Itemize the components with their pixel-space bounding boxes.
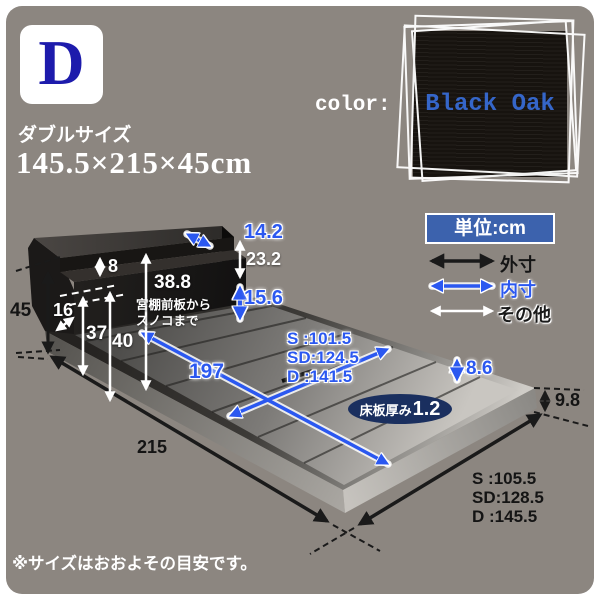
dim-rail-inner-height: 8.6	[466, 358, 492, 380]
dim-height-37: 37	[86, 323, 107, 345]
disclaimer-notes: ※サイズはおおよその目安です。 ※曲線部や若干の個体差などにより、 表記と多少の…	[12, 509, 373, 594]
legend-outer-label: 外寸	[500, 251, 536, 277]
outer-width-block: S :105.5 SD:128.5 D :145.5	[472, 469, 544, 526]
color-label: color:	[315, 94, 391, 117]
product-spec-card: D ダブルサイズ 145.5×215×45cm color: Black Oak…	[6, 6, 594, 594]
dim-headboard-front-upper: 23.2	[246, 249, 281, 270]
dim-inner-width-s: S :101.5	[287, 329, 359, 348]
color-name: Black Oak	[425, 91, 555, 118]
dim-total-height: 45	[10, 300, 31, 322]
dim-frame-height: 9.8	[555, 390, 580, 411]
unit-badge: 単位:cm	[425, 213, 555, 244]
dim-outer-width-sd: SD:128.5	[472, 488, 544, 507]
size-letter-badge: D	[20, 25, 103, 104]
size-letter: D	[20, 25, 103, 101]
note-line-1: ※サイズはおおよその目安です。	[12, 553, 373, 575]
size-dimensions: 145.5×215×45cm	[16, 145, 252, 181]
legend-inner-label: 内寸	[500, 276, 536, 302]
dim-headboard-lip: 8	[108, 256, 118, 277]
dim-outer-width-d: D :145.5	[472, 507, 544, 526]
size-name: ダブルサイズ	[18, 120, 131, 147]
shelf-note-line2: スノコまで	[136, 310, 199, 329]
legend-other-label: その他	[497, 301, 551, 327]
inner-width-block: S :101.5 SD:124.5 D :141.5	[287, 329, 359, 386]
color-swatch: Black Oak	[413, 31, 567, 177]
dim-outer-width-s: S :105.5	[472, 469, 544, 488]
slat-thickness-value: 1.2	[413, 398, 441, 421]
dim-inner-width-d: D :141.5	[287, 367, 359, 386]
dim-shelf-to-slats: 38.8	[154, 272, 191, 294]
slat-thickness-label: 床板厚み	[360, 400, 412, 419]
dim-height-40: 40	[112, 331, 133, 353]
slat-thickness-badge: 床板厚み1.2	[348, 394, 452, 424]
dim-headboard-front-lower: 15.6	[244, 287, 283, 310]
dim-shelf-depth-inner: 16	[53, 300, 73, 321]
dim-inner-width-sd: SD:124.5	[287, 348, 359, 367]
dim-outer-length: 215	[137, 437, 167, 458]
dim-shelf-top-depth: 14.2	[244, 221, 283, 244]
dim-inner-length: 197	[189, 360, 224, 384]
